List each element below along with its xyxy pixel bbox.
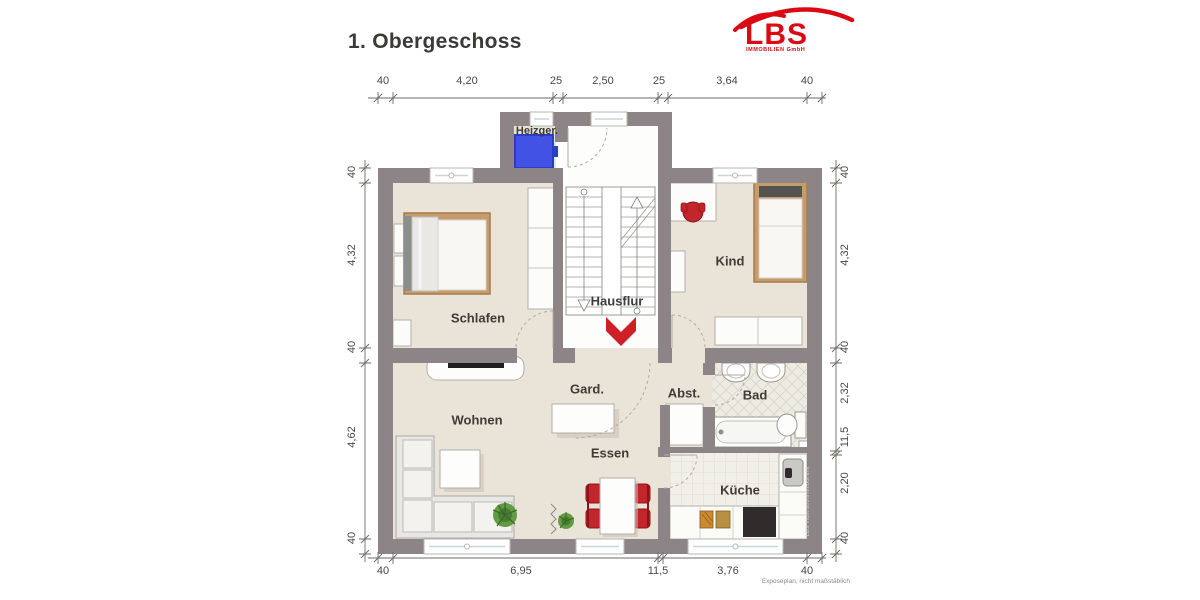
dim-right-3: 2,32 [838,371,852,415]
room-label-bad: Bad [743,388,768,403]
illustration-watermark: LBS IllustrationImmoGrafik [805,456,811,536]
dim-top-3: 2,50 [581,74,625,88]
room-label-kueche: Küche [720,483,760,498]
dim-left-2: 40 [345,325,359,369]
dim-top-2: 25 [534,74,578,88]
washbasin [757,363,785,382]
dim-bottom-0: 40 [361,564,405,578]
window [424,539,510,554]
dim-top-0: 40 [361,74,405,88]
dim-top-4: 25 [637,74,681,88]
dim-top-6: 40 [785,74,829,88]
wardrobe-gard [552,404,619,438]
cooktop [743,507,776,537]
room-label-hausflur: Hausflur [591,294,644,309]
washbasin [722,363,750,382]
dim-right-6: 40 [838,516,852,560]
window [576,539,624,554]
dim-left-4: 40 [345,516,359,560]
floorplan-page: 1. Obergeschoss LBS IMMOBILIEN GmbH Heiz… [0,0,1200,600]
toilet [777,412,806,438]
dim-bottom-2: 11,5 [636,564,680,578]
lbs-logo-subtitle: IMMOBILIEN GmbH [746,47,805,53]
window [713,168,757,183]
dim-left-1: 4,32 [345,233,359,277]
window [688,539,783,554]
dim-left-3: 4,62 [345,415,359,459]
dim-top-5: 3,64 [705,74,749,88]
room-label-schlafen: Schlafen [451,311,505,326]
single-bed [754,182,807,282]
room-label-essen: Essen [591,446,629,461]
coffee-table [440,450,484,492]
dim-right-2: 40 [838,325,852,369]
dim-right-1: 4,32 [838,233,852,277]
double-bed [404,213,490,294]
dim-bottom-3: 3,76 [706,564,750,578]
dim-right-5: 2,20 [838,461,852,505]
room-label-kind: Kind [716,254,745,269]
dim-right-4: 11,5 [838,415,852,459]
window [430,168,473,183]
wardrobe [528,188,554,309]
room-label-heizger: Heizger. [516,125,558,137]
room-label-abst: Abst. [668,386,701,401]
room-label-wohnen: Wohnen [451,413,502,428]
sink [783,459,803,486]
footer-note: Exposéplan, nicht maßstäblich [762,578,850,585]
storage-cabinet [666,404,703,445]
lbs-logo-text: LBS [745,20,808,50]
heater-unit [507,135,558,168]
window [530,112,553,126]
page-title: 1. Obergeschoss [348,30,522,54]
dim-bottom-4: 40 [785,564,829,578]
sideboard [715,317,802,345]
dim-bottom-1: 6,95 [499,564,543,578]
room-label-gard: Gard. [570,382,604,397]
dining-table [600,478,635,534]
dim-top-1: 4,20 [445,74,489,88]
cutting-board [716,511,730,528]
dim-right-0: 40 [838,150,852,194]
dresser [393,320,411,346]
dim-left-0: 40 [345,150,359,194]
window [591,112,627,126]
